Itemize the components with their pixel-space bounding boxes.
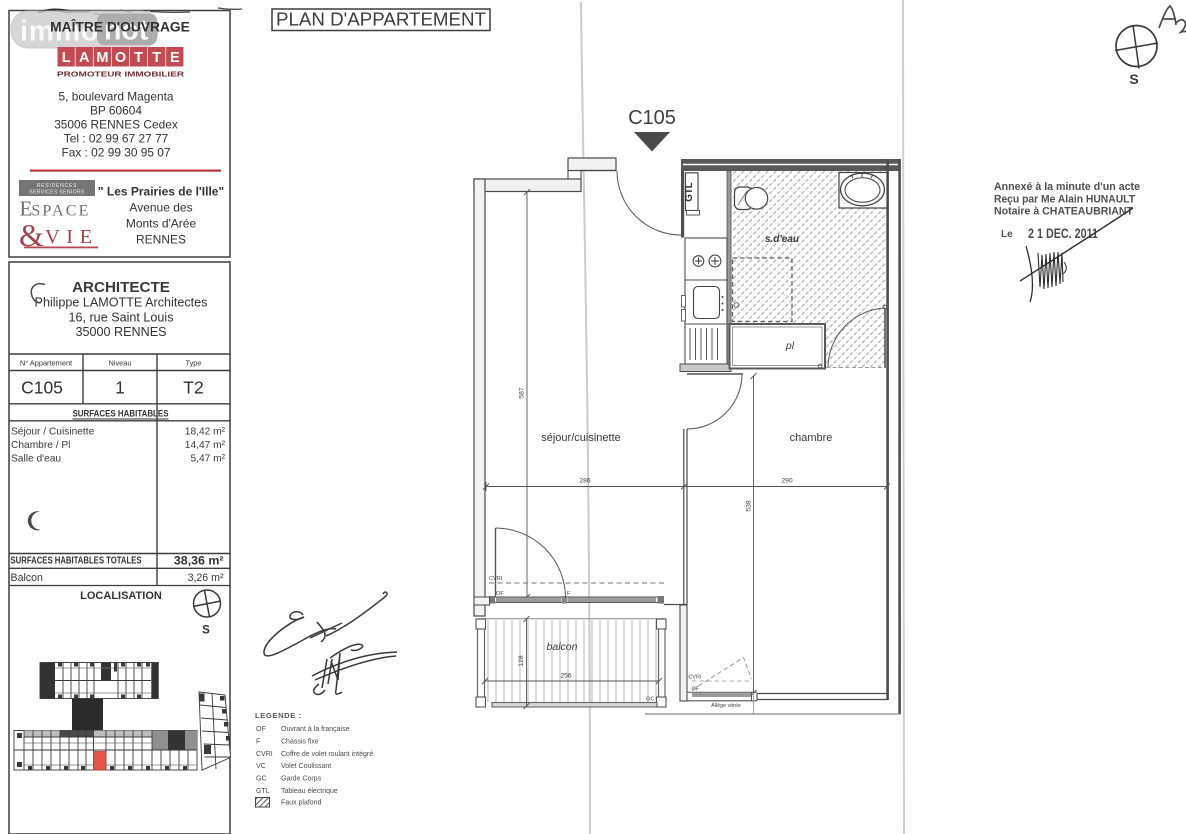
svg-text:BP 60604: BP 60604	[90, 104, 142, 118]
svg-text:A: A	[79, 50, 90, 66]
svg-text:E: E	[170, 50, 180, 66]
svg-text:SURFACES HABITABLES TOTALES: SURFACES HABITABLES TOTALES	[11, 556, 142, 567]
svg-text:chambre: chambre	[790, 432, 833, 444]
svg-text:GTL: GTL	[684, 182, 695, 202]
svg-text:RENNES: RENNES	[136, 233, 186, 247]
svg-text:Tel : 02 99 67 27 77: Tel : 02 99 67 27 77	[64, 132, 169, 146]
svg-text:5, boulevard Magenta: 5, boulevard Magenta	[58, 90, 173, 104]
svg-text:18,42 m²: 18,42 m²	[185, 427, 226, 438]
svg-text:GC: GC	[646, 697, 654, 703]
svg-text:F: F	[567, 591, 571, 597]
svg-text:1: 1	[115, 378, 125, 398]
svg-text:OF: OF	[692, 687, 700, 693]
svg-text:OF: OF	[256, 726, 266, 733]
svg-text:PROMOTEUR IMMOBILIER: PROMOTEUR IMMOBILIER	[57, 70, 185, 79]
svg-text:38,36 m²: 38,36 m²	[174, 554, 224, 568]
svg-text:Garde Corps: Garde Corps	[281, 776, 322, 783]
svg-text:Fax : 02 99 30 95 07: Fax : 02 99 30 95 07	[61, 146, 170, 160]
svg-text:pl: pl	[785, 340, 795, 352]
svg-text:C105: C105	[21, 378, 63, 398]
svg-text:SURFACES HABITABLES: SURFACES HABITABLES	[73, 409, 169, 419]
svg-text:Reçu par Me Alain HUNAULT: Reçu par Me Alain HUNAULT	[994, 194, 1135, 206]
svg-text:GC: GC	[256, 776, 267, 783]
svg-text:CVRI: CVRI	[256, 751, 273, 758]
svg-text:N° Appartement: N° Appartement	[20, 358, 72, 367]
svg-text:S: S	[202, 625, 210, 637]
svg-text:256: 256	[560, 673, 572, 680]
svg-text:SERVICES SENIORS: SERVICES SENIORS	[29, 190, 85, 196]
svg-text:F: F	[256, 739, 260, 746]
svg-text:Balcon: Balcon	[11, 572, 43, 584]
svg-text:Séjour / Cuisinette: Séjour / Cuisinette	[11, 427, 95, 438]
svg-text:GTL: GTL	[256, 788, 270, 795]
svg-text:O: O	[115, 50, 126, 66]
svg-text:VIE: VIE	[45, 226, 99, 248]
svg-text:Tableau électrique: Tableau électrique	[281, 788, 338, 795]
svg-text:Philippe LAMOTTE Architectes: Philippe LAMOTTE Architectes	[35, 296, 208, 310]
svg-text:T: T	[152, 50, 161, 66]
svg-text:LEGENDE :: LEGENDE :	[255, 711, 302, 720]
svg-text:T2: T2	[183, 378, 203, 398]
svg-text:538: 538	[746, 500, 753, 512]
svg-text:séjour/cuisinette: séjour/cuisinette	[541, 432, 621, 444]
svg-text:RESIDENCES: RESIDENCES	[37, 183, 78, 189]
svg-text:S: S	[1129, 71, 1138, 87]
svg-text:LOCALISATION: LOCALISATION	[80, 590, 162, 602]
svg-text:L: L	[62, 50, 71, 66]
svg-text:35000 RENNES: 35000 RENNES	[75, 325, 166, 339]
svg-text:balcon: balcon	[547, 641, 578, 653]
svg-text:128: 128	[518, 655, 525, 667]
svg-text:Ouvrant à la française: Ouvrant à la française	[281, 726, 350, 733]
svg-text:OF: OF	[496, 591, 504, 597]
svg-text:Chambre / Pl: Chambre / Pl	[11, 440, 70, 451]
svg-text:5,47 m²: 5,47 m²	[190, 454, 225, 465]
svg-text:Chassis fixe: Chassis fixe	[281, 739, 319, 746]
svg-text:" Les Prairies de l'Ille": " Les Prairies de l'Ille"	[98, 185, 224, 199]
svg-text:Avenue des: Avenue des	[129, 201, 192, 215]
svg-text:3,26 m²: 3,26 m²	[188, 572, 224, 584]
svg-text:Niveau: Niveau	[108, 358, 131, 367]
svg-text:Annexé à la minute d'un acte: Annexé à la minute d'un acte	[994, 181, 1140, 193]
svg-text:Allège vitrée: Allège vitrée	[711, 703, 741, 709]
svg-text:CVRI: CVRI	[689, 675, 702, 681]
svg-text:286: 286	[579, 478, 591, 485]
svg-text:VC: VC	[256, 763, 266, 770]
svg-text:Notaire à CHATEAUBRIANT: Notaire à CHATEAUBRIANT	[994, 206, 1133, 218]
svg-text:587: 587	[519, 387, 526, 399]
svg-text:PLAN D'APPARTEMENT: PLAN D'APPARTEMENT	[276, 9, 486, 30]
svg-text:14,47 m²: 14,47 m²	[185, 440, 226, 451]
svg-text:Monts d'Arée: Monts d'Arée	[126, 217, 197, 231]
svg-text:T: T	[134, 50, 143, 66]
svg-text:35006 RENNES Cedex: 35006 RENNES Cedex	[54, 118, 178, 132]
svg-text:Type: Type	[185, 358, 201, 367]
svg-text:Faux plafond: Faux plafond	[281, 800, 322, 807]
svg-text:Volet Coulissant: Volet Coulissant	[281, 763, 331, 770]
svg-text:C105: C105	[628, 107, 676, 129]
svg-text:2 1 DEC. 2011: 2 1 DEC. 2011	[1028, 226, 1098, 241]
svg-text:Coffre de volet roulant intégr: Coffre de volet roulant intégré	[281, 751, 373, 758]
svg-text:290: 290	[781, 478, 793, 485]
svg-text:16, rue Saint Louis: 16, rue Saint Louis	[68, 311, 173, 325]
svg-text:CVRI: CVRI	[489, 576, 503, 582]
svg-text:ARCHITECTE: ARCHITECTE	[72, 279, 170, 296]
svg-text:s.d'eau: s.d'eau	[765, 234, 799, 245]
svg-text:Le: Le	[1001, 229, 1013, 240]
svg-text:M: M	[96, 50, 108, 66]
svg-text:MAÎTRE D'OUVRAGE: MAÎTRE D'OUVRAGE	[50, 18, 190, 35]
svg-text:Salle d'eau: Salle d'eau	[11, 454, 61, 465]
